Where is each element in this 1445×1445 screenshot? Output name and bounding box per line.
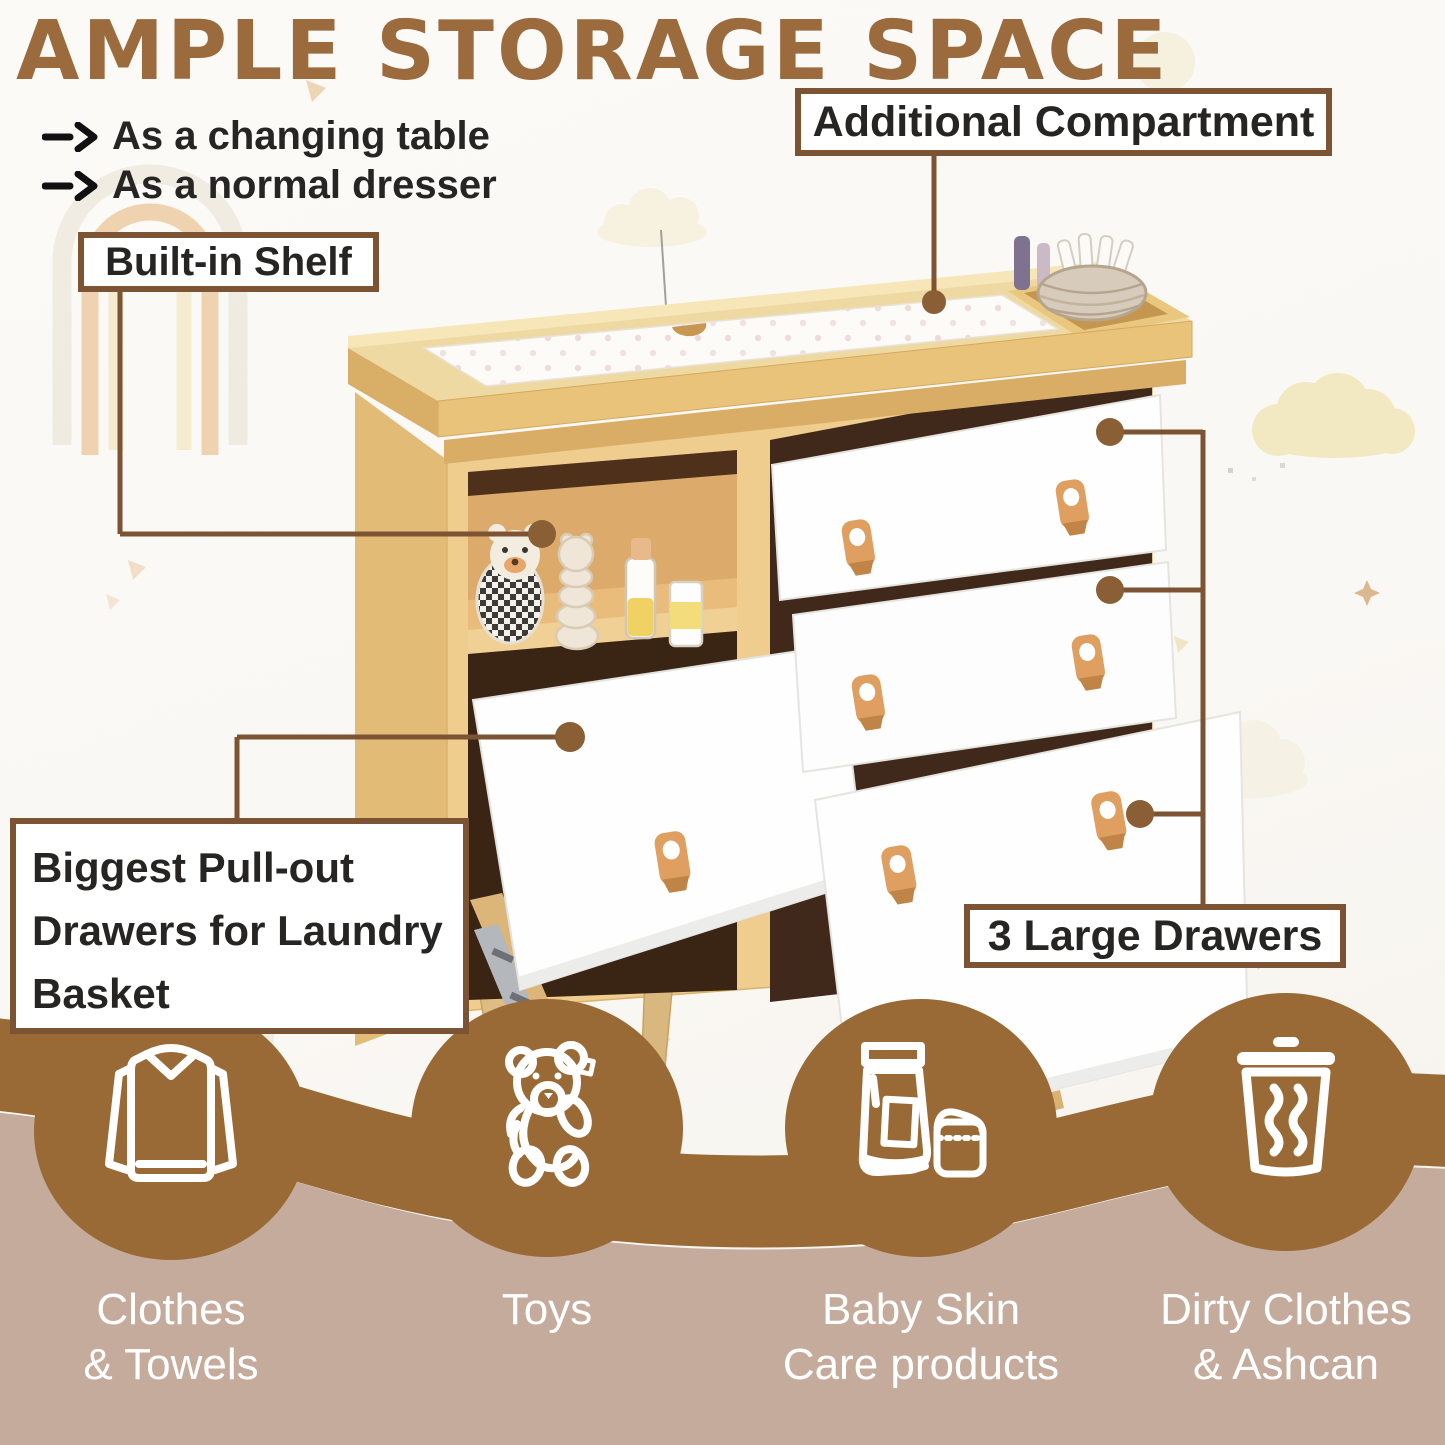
category-caption-trash: Dirty Clothes & Ashcan (1116, 1283, 1445, 1392)
category-caption-skincare: Baby Skin Care products (751, 1283, 1091, 1392)
feature-label: As a normal dresser (112, 163, 497, 208)
category-circle-trash (1150, 993, 1422, 1251)
plush-toy-caterpillar (556, 534, 598, 649)
callout-pull-out-drawer: Biggest Pull-out Drawers for Laundry Bas… (10, 818, 469, 1034)
feature-label: As a changing table (112, 114, 490, 159)
cloud-decoration (1252, 373, 1415, 458)
arrow-icon (42, 171, 98, 201)
category-circle-clothes (34, 1002, 308, 1260)
cloud-decoration (597, 188, 707, 247)
category-circle-toys (411, 999, 683, 1257)
feature-bullet-changing-table: As a changing table (42, 114, 490, 159)
arrow-icon (42, 122, 98, 152)
category-caption-toys: Toys (377, 1283, 717, 1338)
rainbow-decoration (62, 174, 238, 455)
illustration-canvas (0, 0, 1445, 1445)
callout-built-in-shelf: Built-in Shelf (78, 232, 379, 292)
callout-additional-compartment: Additional Compartment (795, 88, 1332, 156)
page-title: AMPLE STORAGE SPACE (16, 4, 1169, 99)
category-caption-clothes: Clothes & Towels (1, 1283, 341, 1392)
feature-bullet-normal-dresser: As a normal dresser (42, 163, 497, 208)
callout-large-drawers: 3 Large Drawers (964, 904, 1346, 968)
lotion-canister (670, 582, 702, 646)
